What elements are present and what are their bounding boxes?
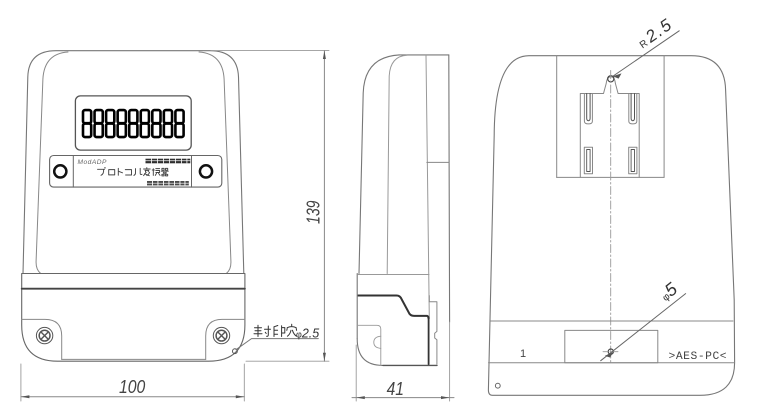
svg-text:R 2.5: R 2.5 bbox=[634, 14, 676, 52]
svg-text:100: 100 bbox=[119, 377, 145, 397]
svg-text:ModADP: ModADP bbox=[78, 159, 107, 166]
svg-text:139: 139 bbox=[303, 201, 323, 225]
svg-text:41: 41 bbox=[387, 379, 404, 399]
svg-text:φ2.5: φ2.5 bbox=[296, 327, 319, 341]
svg-text:φ5: φ5 bbox=[656, 278, 682, 305]
svg-text:1: 1 bbox=[520, 348, 526, 360]
svg-text:>AES-PC<: >AES-PC< bbox=[669, 351, 728, 363]
